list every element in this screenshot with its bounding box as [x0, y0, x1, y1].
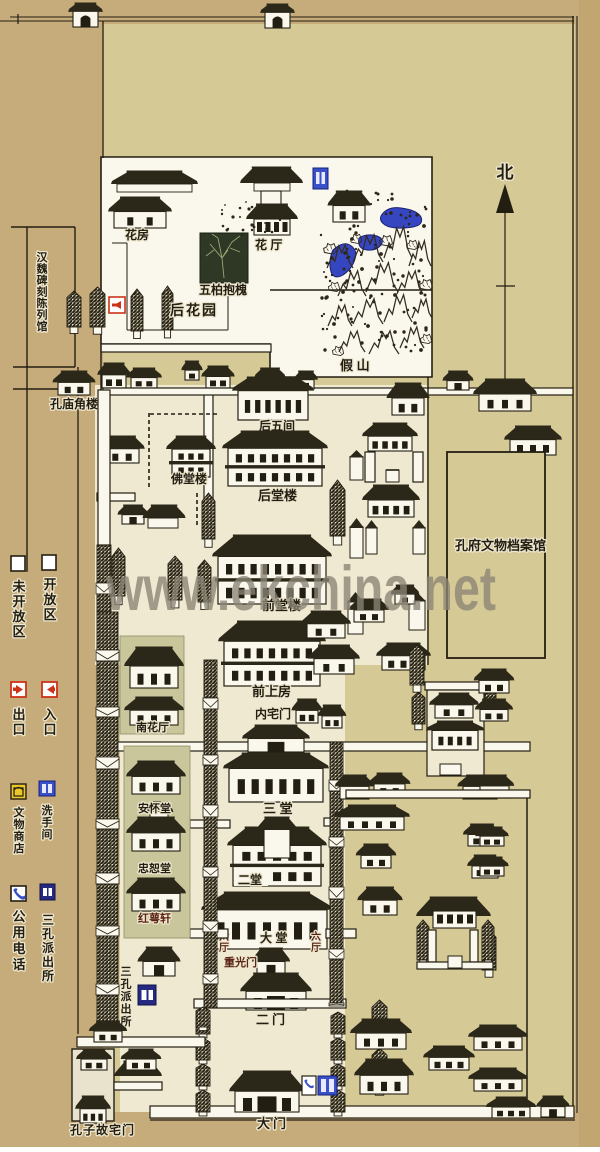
- svg-text:未开放区: 未开放区: [11, 579, 26, 639]
- svg-text:假 山: 假 山: [340, 358, 370, 373]
- svg-text:三 堂: 三 堂: [263, 801, 293, 816]
- svg-text:北: 北: [497, 163, 514, 182]
- svg-text:www.ekchina.net: www.ekchina.net: [105, 554, 496, 624]
- svg-text:南花厅: 南花厅: [136, 720, 169, 734]
- svg-text:内宅门: 内宅门: [255, 706, 291, 721]
- svg-text:入口: 入口: [43, 707, 56, 737]
- svg-text:文物商店: 文物商店: [14, 805, 26, 855]
- svg-text:大 堂: 大 堂: [260, 930, 287, 945]
- svg-text:孔庙角楼: 孔庙角楼: [50, 396, 98, 411]
- svg-text:二堂: 二堂: [238, 872, 262, 887]
- svg-text:五柏抱槐: 五柏抱槐: [199, 282, 247, 297]
- svg-text:后堂楼: 后堂楼: [258, 488, 297, 503]
- svg-text:重光门: 重光门: [224, 955, 257, 969]
- svg-text:后花园: 后花园: [170, 302, 218, 318]
- svg-text:孔子故宅门: 孔子故宅门: [70, 1122, 135, 1137]
- svg-text:红萼轩: 红萼轩: [138, 911, 171, 925]
- svg-text:出口: 出口: [12, 707, 25, 737]
- svg-text:前上房: 前上房: [252, 684, 291, 699]
- svg-text:开放区: 开放区: [42, 577, 57, 622]
- svg-text:安怀堂: 安怀堂: [138, 801, 171, 815]
- svg-text:三孔派出所: 三孔派出所: [42, 913, 55, 983]
- svg-text:忠恕堂: 忠恕堂: [138, 861, 171, 875]
- svg-text:花 厅: 花 厅: [255, 237, 282, 252]
- svg-text:三孔派出所: 三孔派出所: [121, 965, 133, 1028]
- svg-text:汉魏碑刻陈列馆: 汉魏碑刻陈列馆: [36, 250, 49, 333]
- svg-text:公用电话: 公用电话: [11, 909, 25, 972]
- svg-text:洗手间: 洗手间: [42, 803, 53, 841]
- svg-text:六厅: 六厅: [311, 930, 321, 954]
- svg-text:二门: 二门: [256, 1012, 288, 1027]
- svg-text:大门: 大门: [257, 1116, 289, 1131]
- svg-text:佛堂楼: 佛堂楼: [170, 471, 207, 486]
- svg-text:花房: 花房: [125, 227, 149, 242]
- svg-text:孔府文物档案馆: 孔府文物档案馆: [455, 538, 546, 553]
